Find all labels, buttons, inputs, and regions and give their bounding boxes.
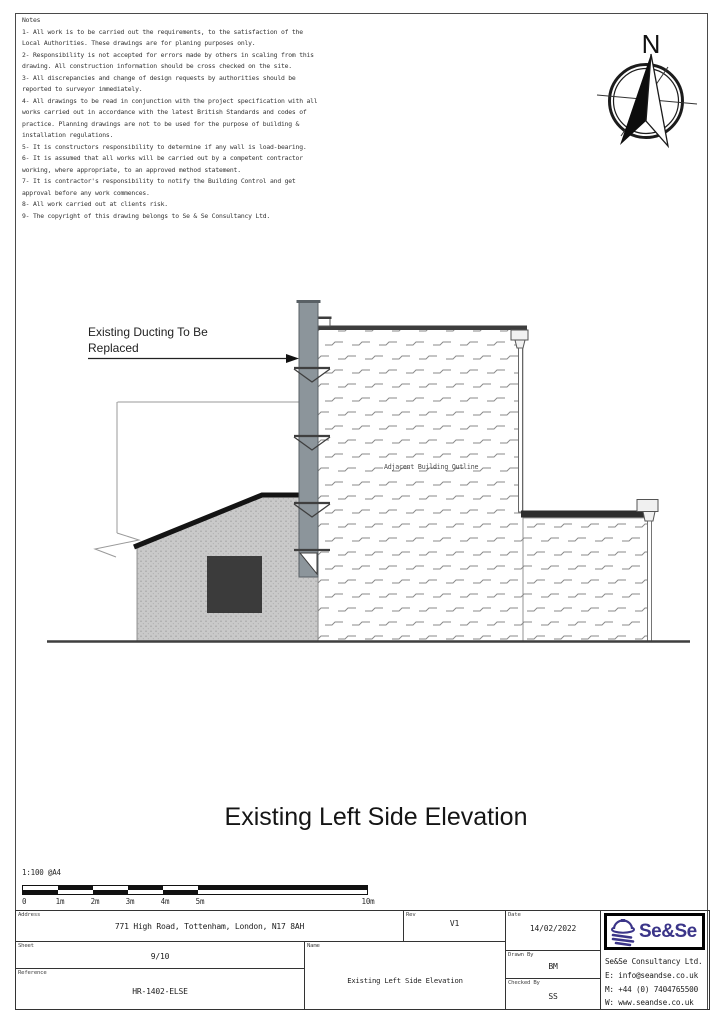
scale-segment (198, 886, 367, 890)
scale-tick-label: 1m (56, 897, 65, 906)
address-cell: Address 771 High Road, Tottenham, London… (16, 911, 404, 942)
date-value: 14/02/2022 (506, 924, 600, 933)
drawn-by-cell: Drawn By BM (506, 951, 601, 979)
scale-tick-label: 2m (91, 897, 100, 906)
rev-label: Rev (406, 912, 416, 918)
drawing-title: Existing Left Side Elevation (225, 803, 528, 832)
name-cell: Name Existing Left Side Elevation (305, 942, 506, 1010)
scale-tick-label: 0 (22, 897, 26, 906)
drawn-by-value: BM (506, 962, 600, 971)
name-label: Name (307, 943, 320, 949)
drawn-by-label: Drawn By (508, 952, 533, 958)
downpipe (519, 348, 523, 512)
scale-tick-label: 10m (362, 897, 375, 906)
scale-bar (22, 885, 368, 895)
company-cell: Se&Se Se&Se Consultancy Ltd. E: info@sea… (601, 911, 710, 1010)
title-block: Address 771 High Road, Tottenham, London… (15, 910, 710, 1010)
adjacent-building-label: Adjacent Building Outline (384, 463, 478, 471)
checked-by-cell: Checked By SS (506, 979, 601, 1010)
duct-label-line2: Replaced (88, 341, 208, 357)
scale-segment (23, 890, 58, 894)
hard-hat-icon (609, 916, 639, 947)
scale-tick-label: 5m (196, 897, 205, 906)
rev-value: V1 (404, 919, 505, 928)
left-building (134, 495, 318, 641)
rainwater-hopper (511, 330, 528, 340)
hopper-funnel (515, 340, 525, 348)
duct-label-line1: Existing Ducting To Be (88, 325, 208, 341)
date-label: Date (508, 912, 521, 918)
compass-rose: N (597, 29, 697, 146)
reference-cell: Reference HR-1402-ELSE (16, 969, 305, 1010)
parapet-upstand (317, 318, 330, 326)
logo-text: Se&Se (639, 921, 697, 943)
sheet-label: Sheet (18, 943, 34, 949)
scale-tick-label: 4m (161, 897, 170, 906)
reference-value: HR-1402-ELSE (16, 987, 304, 996)
sheet-cell: Sheet 9/10 (16, 942, 305, 969)
checked-by-value: SS (506, 992, 600, 1001)
company-logo: Se&Se (604, 913, 705, 950)
address-label: Address (18, 912, 40, 918)
elevation-drawing: N (0, 0, 724, 1024)
sheet-value: 9/10 (16, 952, 304, 961)
company-name: Se&Se Consultancy Ltd. (605, 955, 702, 969)
rainwater-hopper (637, 500, 658, 512)
reference-label: Reference (18, 970, 47, 976)
scale-ratio-label: 1:100 @A4 (22, 868, 61, 877)
company-email: E: info@seandse.co.uk (605, 969, 702, 983)
scale-segment (58, 886, 93, 890)
lower-building (521, 500, 658, 642)
duct-leader-label: Existing Ducting To Be Replaced (88, 325, 208, 356)
company-mobile: M: +44 (0) 7404765500 (605, 983, 702, 997)
hopper-funnel (643, 512, 655, 522)
checked-by-label: Checked By (508, 980, 540, 986)
scale-tick-label: 3m (126, 897, 135, 906)
window (207, 556, 262, 613)
adjacent-building-wall (316, 317, 529, 642)
company-info: Se&Se Consultancy Ltd. E: info@seandse.c… (605, 955, 702, 1010)
address-value: 771 High Road, Tottenham, London, N17 8A… (16, 922, 403, 931)
date-cell: Date 14/02/2022 (506, 911, 601, 951)
name-value: Existing Left Side Elevation (305, 976, 505, 985)
flat-roof-edge (521, 511, 649, 518)
parapet-coping (317, 326, 527, 331)
company-web: W: www.seandse.co.uk (605, 996, 702, 1010)
rev-cell: Rev V1 (404, 911, 506, 942)
scale-segment (128, 886, 163, 890)
downpipe (648, 521, 652, 641)
scale-segment (93, 890, 128, 894)
duct-cap (297, 300, 321, 303)
scale-segment (163, 890, 198, 894)
